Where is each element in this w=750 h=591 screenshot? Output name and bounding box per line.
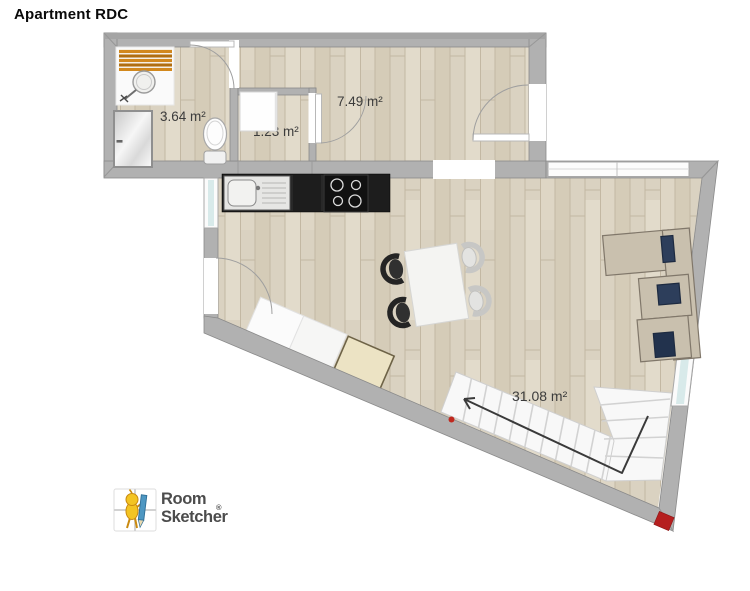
- living-room-passage: [433, 160, 495, 179]
- shower-handle: [117, 140, 123, 143]
- sofa-pillow-navy-2: [653, 332, 675, 358]
- logo-text-room: Room: [161, 490, 206, 508]
- logo-registered-mark: ®: [216, 503, 222, 512]
- toilet: [204, 118, 227, 164]
- bath-mat: [119, 49, 172, 71]
- dining-table: [404, 243, 468, 326]
- kitchen: [222, 174, 390, 212]
- room-label-bathroom: 3.64 m²: [160, 109, 206, 124]
- shower-cabin: [114, 111, 152, 167]
- sofa-cushion-navy: [657, 283, 681, 305]
- roomsketcher-logo: Room Sketcher ®: [114, 489, 228, 531]
- storage-appliance: [240, 92, 277, 131]
- entrance-door-opening: [204, 258, 218, 314]
- window-left-glass: [208, 180, 214, 226]
- cooktop: [324, 175, 368, 212]
- kitchen-sink-basin: [228, 180, 256, 206]
- room-label-hallway: 7.49 m²: [337, 94, 383, 109]
- red-marker-dot: [449, 417, 455, 423]
- bathroom-door-leaf: [190, 41, 234, 47]
- sofa-pillow-navy-1: [661, 236, 675, 263]
- hallway-door-leaf: [473, 134, 529, 141]
- hallway-door-opening: [529, 84, 546, 141]
- floor-plan-canvas: 1.23 m² 3.64 m² 7.49 m² 31.0: [0, 0, 750, 591]
- room-label-living: 31.08 m²: [512, 388, 568, 404]
- floor-plan-page: Apartment RDC: [0, 0, 750, 591]
- upper-section-floor: [117, 47, 529, 161]
- kitchen-faucet: [256, 186, 260, 190]
- toilet-tank: [204, 151, 226, 164]
- storage-door-leaf: [316, 94, 322, 143]
